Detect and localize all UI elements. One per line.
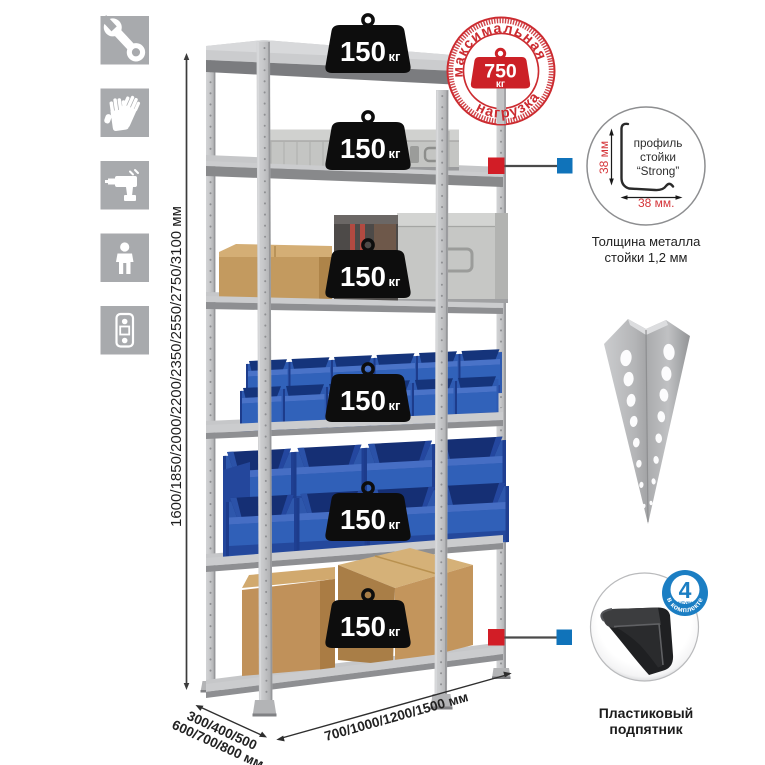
svg-text:подпятник: подпятник [609,721,683,737]
svg-text:Пластиковый: Пластиковый [599,705,694,721]
svg-text:1600/1850/2000/2200/2350/2550/: 1600/1850/2000/2200/2350/2550/2750/3100 … [168,206,185,527]
svg-text:38 мм.: 38 мм. [638,196,675,210]
svg-text:профиль: профиль [634,136,683,150]
svg-text:стойки 1,2 мм: стойки 1,2 мм [605,250,688,265]
svg-text:Толщина металла: Толщина металла [592,234,701,249]
svg-text:кг: кг [496,79,505,90]
svg-text:стойки: стойки [640,150,676,164]
svg-text:38 мм: 38 мм [597,141,611,174]
svg-text:“Strong”: “Strong” [637,164,680,178]
